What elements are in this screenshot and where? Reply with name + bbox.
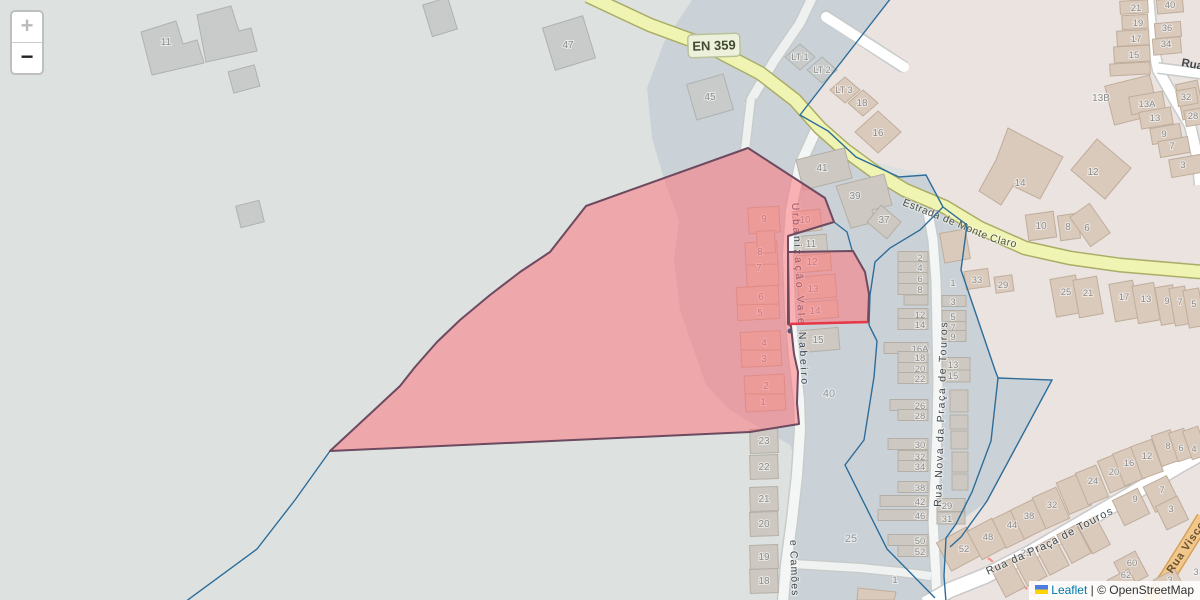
svg-text:19: 19 [1133, 18, 1144, 29]
svg-text:22: 22 [915, 374, 926, 385]
svg-text:47: 47 [562, 40, 574, 51]
svg-text:3: 3 [950, 297, 955, 308]
svg-text:30: 30 [915, 440, 926, 451]
svg-text:21: 21 [758, 494, 770, 505]
svg-text:17: 17 [1131, 34, 1142, 45]
svg-text:52: 52 [959, 544, 970, 555]
svg-text:32: 32 [1181, 92, 1192, 103]
svg-text:21: 21 [1083, 288, 1094, 299]
svg-text:6: 6 [1084, 223, 1090, 234]
svg-text:34: 34 [1161, 39, 1172, 50]
svg-text:13: 13 [948, 360, 959, 371]
svg-text:8: 8 [1065, 222, 1071, 233]
svg-text:13: 13 [1150, 113, 1161, 124]
svg-text:15: 15 [812, 335, 824, 346]
svg-text:8: 8 [917, 285, 922, 296]
svg-text:31: 31 [942, 514, 953, 525]
svg-text:LT 3: LT 3 [835, 85, 852, 95]
svg-text:34: 34 [915, 462, 926, 473]
svg-text:13A: 13A [1139, 99, 1157, 110]
svg-text:46: 46 [915, 511, 926, 522]
svg-text:4: 4 [1191, 444, 1196, 455]
svg-text:12: 12 [1087, 167, 1099, 178]
svg-text:40: 40 [823, 388, 835, 400]
svg-text:23: 23 [758, 436, 770, 447]
svg-text:9: 9 [1164, 296, 1169, 307]
svg-text:20: 20 [1109, 467, 1120, 478]
svg-text:15: 15 [948, 371, 959, 382]
svg-text:18: 18 [856, 98, 868, 109]
svg-text:45: 45 [704, 92, 716, 103]
svg-text:11: 11 [806, 239, 817, 250]
svg-text:17: 17 [1119, 292, 1130, 303]
svg-text:40: 40 [1165, 0, 1176, 11]
svg-text:21: 21 [1131, 3, 1142, 14]
svg-text:7: 7 [1169, 141, 1174, 152]
svg-text:1: 1 [892, 575, 897, 586]
svg-text:12: 12 [1142, 451, 1153, 462]
svg-text:44: 44 [1007, 520, 1018, 531]
svg-text:22: 22 [758, 462, 770, 473]
svg-text:9: 9 [1161, 129, 1166, 140]
svg-text:48: 48 [983, 532, 994, 543]
svg-text:8: 8 [1165, 441, 1170, 452]
svg-text:16: 16 [872, 128, 884, 139]
svg-text:28: 28 [1188, 111, 1199, 122]
svg-text:10: 10 [1035, 221, 1047, 232]
svg-text:20: 20 [758, 519, 770, 530]
svg-text:7: 7 [1159, 485, 1164, 496]
svg-text:14: 14 [915, 320, 926, 331]
svg-text:25: 25 [1061, 287, 1072, 298]
svg-text:13B: 13B [1092, 93, 1110, 104]
svg-text:3: 3 [1180, 160, 1185, 171]
svg-text:38: 38 [915, 483, 926, 494]
svg-text:42: 42 [915, 497, 926, 508]
svg-text:1: 1 [950, 278, 955, 289]
svg-text:3: 3 [1168, 504, 1173, 515]
svg-text:33: 33 [972, 275, 983, 286]
svg-text:7: 7 [1177, 297, 1182, 308]
svg-text:e Camões: e Camões [787, 540, 801, 597]
svg-text:36: 36 [1162, 23, 1173, 34]
svg-text:25: 25 [845, 533, 857, 545]
svg-text:11: 11 [161, 37, 172, 48]
svg-text:13: 13 [1141, 294, 1152, 305]
svg-text:62: 62 [1121, 570, 1132, 581]
svg-text:52: 52 [915, 547, 926, 558]
svg-text:32: 32 [1047, 500, 1058, 511]
svg-text:14: 14 [1014, 178, 1026, 189]
svg-text:18: 18 [758, 576, 770, 587]
svg-text:15: 15 [1129, 50, 1140, 61]
svg-text:29: 29 [998, 280, 1009, 291]
svg-text:38: 38 [1024, 511, 1035, 522]
svg-text:19: 19 [758, 552, 770, 563]
svg-text:LT 2: LT 2 [813, 65, 830, 75]
svg-text:5: 5 [1191, 299, 1196, 310]
svg-text:41: 41 [816, 163, 828, 174]
svg-text:39: 39 [849, 191, 861, 202]
svg-text:16: 16 [1124, 458, 1135, 469]
svg-text:9: 9 [950, 332, 955, 343]
svg-text:9: 9 [1132, 494, 1137, 505]
svg-text:LT 1: LT 1 [791, 52, 808, 62]
svg-text:60: 60 [1127, 558, 1138, 569]
svg-text:28: 28 [915, 411, 926, 422]
svg-text:37: 37 [878, 215, 890, 226]
svg-text:3: 3 [1193, 567, 1198, 578]
svg-text:EN 359: EN 359 [692, 37, 736, 54]
svg-text:6: 6 [1178, 443, 1183, 454]
svg-text:24: 24 [1088, 476, 1099, 487]
